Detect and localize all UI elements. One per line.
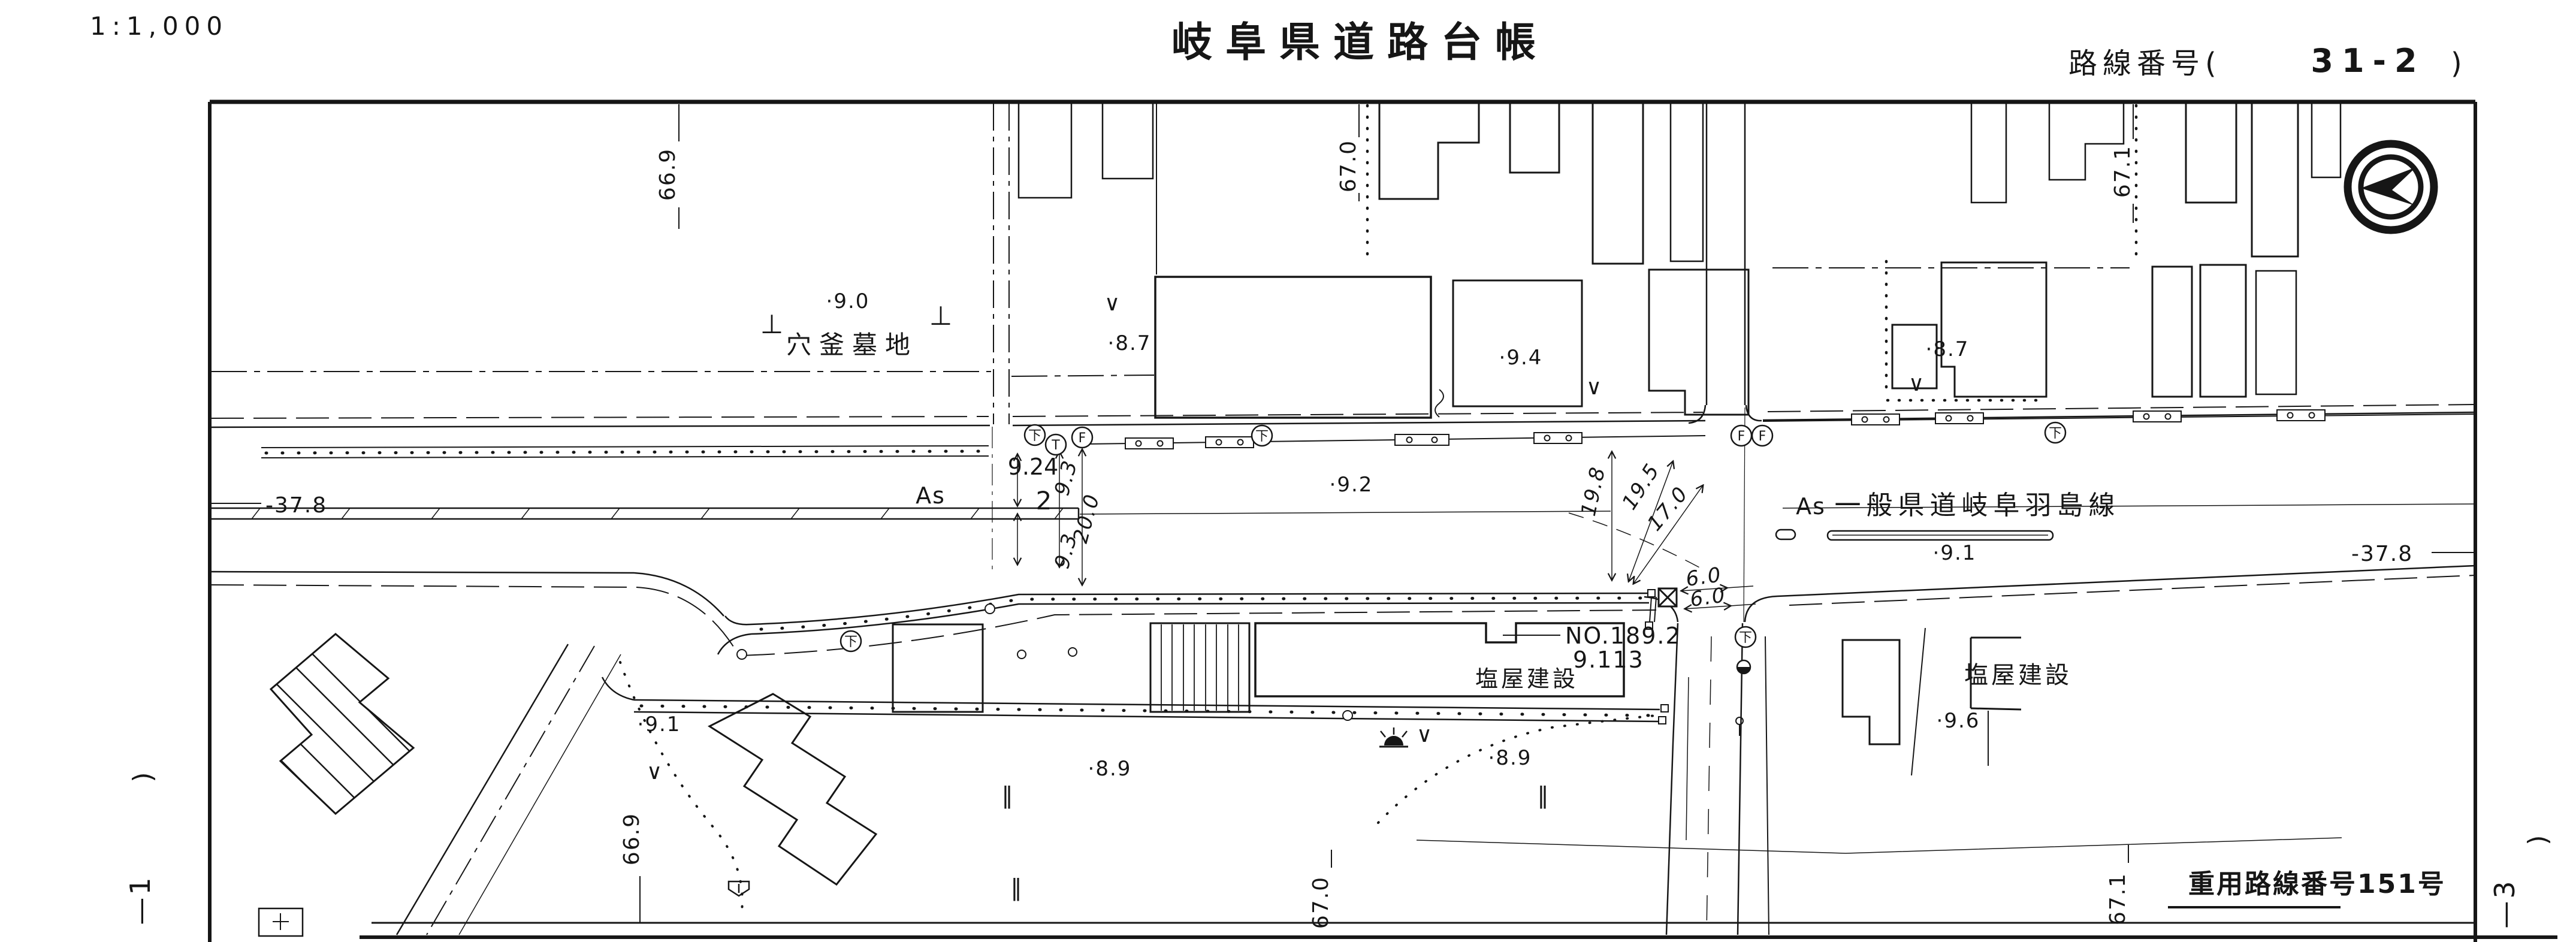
route-number-close: ) [2451,47,2468,80]
svg-text:F: F [1079,431,1086,446]
manhole-f-icon: F [1731,425,1751,446]
manhole-down-icon: 下 [2045,422,2065,443]
field-symbol: ‖ [1538,782,1550,809]
grid-right: -37.8 [2351,542,2413,566]
grid-top-2: 67.0 [1336,140,1361,192]
spot-elevation: ·9.2 [1330,473,1373,497]
dim-19-8: 19.8 [1577,464,1611,518]
dim-6-0-lower: 6.0 [1689,583,1728,612]
cemetery-label: 穴釜墓地 [786,330,918,360]
map-scale: 1:1,000 [90,11,228,41]
spot-elevation: ·9.1 [638,712,681,736]
map-frame [210,102,2557,942]
spot-elevation: ·9.4 [1499,346,1543,370]
road-name-label: 一般県道岐阜羽島線 [1835,490,2121,521]
half-circle-marker-icon [1737,660,1750,674]
margin-labels: ) —1 ) —3 重用路線番号151号 [124,772,2553,928]
monument-symbol-icon [729,881,749,896]
manhole-f-icon: F [1072,427,1092,448]
north-arrow-icon [2348,144,2434,230]
right-margin-paren: ) [2523,835,2553,845]
dim-9-24: 9.24 [1008,454,1059,480]
manhole-down-icon: 下 [1025,425,1045,445]
svg-text:T: T [1051,438,1060,453]
header: 1:1,000 岐阜県道路台帳 路線番号( 31-2 ) [90,11,2468,80]
check-symbol: ∨ [1586,375,1602,400]
grid-bottom-2: 67.0 [1309,876,1333,929]
spot-elevation: ·8.9 [1488,746,1532,770]
spot-elevation: ·8.7 [1926,337,1970,361]
field-symbol: ‖ [1011,874,1023,901]
buildings-upper [1019,103,2341,418]
left-margin-paren: ) [128,772,158,782]
signpost-icon [1736,717,1743,736]
check-symbol: ∨ [1417,723,1432,747]
station-number-label: NO.189.2 [1565,623,1681,649]
manhole-down-icon: 下 [1252,425,1272,446]
company-label: 塩屋建設 [1475,666,1578,692]
curb-blocks [1125,410,2325,449]
page-title: 岐阜県道路台帳 [1171,19,1549,67]
check-symbol: ∨ [1104,291,1120,316]
svg-text:下: 下 [2049,426,2062,441]
left-sheet-number: —1 [124,875,156,925]
svg-text:下: 下 [1255,429,1269,444]
svg-text:下: 下 [1739,630,1752,645]
spot-elevation: ·8.9 [1088,757,1132,781]
route-number-label: 路線番号( [2068,47,2222,80]
sun-symbol-icon [1379,727,1408,747]
grid-top-1: 66.9 [656,148,680,201]
svg-text:下: 下 [844,635,857,650]
manhole-down-icon: 下 [1735,627,1756,647]
manhole-t-icon: T [1046,434,1066,455]
grid-bottom-1: 66.9 [620,813,644,865]
spot-elevation: ·9.1 [1933,541,1977,565]
main-road-linework [210,404,2475,659]
grave-symbol: ⊥ [929,301,952,331]
spot-elevation: ·9.0 [826,289,870,313]
surface-label-as: As [1796,493,1826,520]
spot-elevation: ·9.6 [1937,709,1980,733]
svg-text:下: 下 [1028,428,1041,443]
route-number-value: 31-2 [2311,42,2425,80]
grave-symbol: ⊥ [760,309,783,340]
grid-left: -37.8 [265,493,327,518]
manhole-f-icon: F [1752,425,1772,446]
field-symbol: ‖ [1002,782,1014,809]
spot-elevation: ·8.7 [1108,331,1152,355]
road-ledger-sheet: 1:1,000 岐阜県道路台帳 路線番号( 31-2 ) ) —1 ) —3 重… [0,0,2576,942]
check-symbol: ∨ [647,760,662,784]
grid-top-3: 67.1 [2110,145,2135,198]
cross-road-linework [1659,103,1769,935]
manhole-down-icon: 下 [841,631,861,651]
svg-text:F: F [1738,429,1745,444]
check-symbol: ∨ [1908,372,1924,396]
grid-references: 66.9 67.0 67.1 66.9 67.0 67.1 -37.8 -37.… [211,104,2474,929]
company-label: 塩屋建設 [1964,662,2072,689]
dim-9-3-lower: 9.3 [1050,530,1082,571]
joint-route-note: 重用路線番号151号 [2188,869,2446,899]
surface-label-as: As [916,482,946,509]
grid-bottom-3: 67.1 [2106,872,2130,925]
dim-2: 2 [1036,486,1052,515]
svg-text:F: F [1759,429,1766,444]
station-elevation-label: 9.113 [1573,647,1644,673]
right-sheet-number: —3 [2489,878,2521,928]
